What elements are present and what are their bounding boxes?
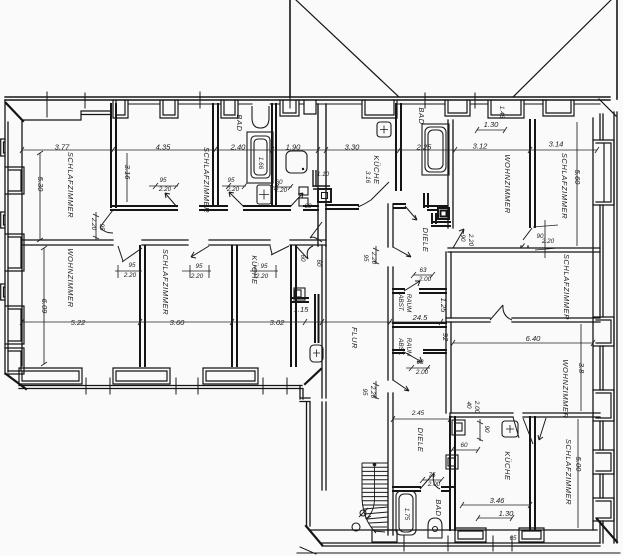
- svg-text:BAD: BAD: [417, 107, 426, 124]
- svg-text:3.14: 3.14: [549, 140, 564, 149]
- svg-text:5.00: 5.00: [574, 457, 583, 473]
- svg-text:BAD: BAD: [434, 499, 443, 516]
- svg-text:2.00: 2.00: [473, 400, 480, 414]
- svg-text:3.60: 3.60: [170, 318, 186, 327]
- svg-text:1.30: 1.30: [484, 120, 500, 129]
- svg-text:3.8: 3.8: [577, 363, 586, 374]
- svg-text:6.40: 6.40: [526, 334, 542, 343]
- svg-text:1.75: 1.75: [403, 508, 410, 521]
- svg-text:WOHNZIMMER: WOHNZIMMER: [561, 359, 570, 418]
- svg-text:75: 75: [428, 472, 436, 479]
- svg-text:1.15: 1.15: [294, 305, 310, 314]
- svg-text:1.66: 1.66: [257, 157, 264, 170]
- svg-text:65: 65: [509, 535, 517, 542]
- svg-text:WOHNZIMMER: WOHNZIMMER: [66, 248, 75, 307]
- svg-text:1.46: 1.46: [498, 106, 505, 119]
- svg-text:2.20: 2.20: [190, 273, 204, 280]
- svg-text:40: 40: [465, 401, 472, 409]
- svg-text:2.20: 2.20: [255, 273, 269, 280]
- svg-text:60: 60: [315, 259, 322, 267]
- svg-text:95: 95: [98, 223, 105, 231]
- svg-text:63: 63: [419, 267, 427, 274]
- svg-text:2.25: 2.25: [416, 143, 433, 152]
- svg-text:ABST.: ABST.: [397, 293, 404, 312]
- svg-text:4.35: 4.35: [156, 143, 172, 152]
- svg-text:BAD: BAD: [235, 114, 244, 131]
- svg-text:95: 95: [361, 388, 368, 396]
- svg-text:3.12: 3.12: [473, 142, 489, 151]
- svg-text:KÜCHE: KÜCHE: [372, 155, 381, 185]
- svg-text:5.22: 5.22: [71, 318, 87, 327]
- svg-text:2.00: 2.00: [427, 481, 441, 488]
- svg-text:3.02: 3.02: [270, 318, 286, 327]
- svg-text:3.46: 3.46: [490, 496, 506, 505]
- svg-text:2.00: 2.00: [415, 369, 429, 376]
- svg-text:1.30: 1.30: [499, 509, 515, 518]
- svg-text:95: 95: [159, 177, 167, 184]
- svg-text:63: 63: [416, 359, 424, 366]
- svg-text:DIELE: DIELE: [421, 228, 430, 253]
- svg-text:95: 95: [362, 254, 369, 262]
- svg-text:2.45: 2.45: [411, 410, 425, 417]
- svg-text:FLUR: FLUR: [350, 327, 359, 349]
- svg-text:3.30: 3.30: [345, 143, 361, 152]
- svg-text:SCHLAFZIMMER: SCHLAFZIMMER: [202, 147, 211, 213]
- svg-text:2.00: 2.00: [418, 276, 432, 283]
- svg-text:3.77: 3.77: [55, 143, 71, 152]
- svg-text:SCHLAFZIMMER: SCHLAFZIMMER: [161, 249, 170, 315]
- svg-text:6.09: 6.09: [40, 299, 49, 315]
- svg-text:ABST.: ABST.: [397, 337, 404, 356]
- svg-text:DIELE: DIELE: [416, 428, 425, 453]
- svg-text:KÜCHE: KÜCHE: [503, 451, 512, 481]
- svg-text:90: 90: [459, 234, 466, 242]
- svg-text:24.5: 24.5: [412, 313, 429, 322]
- svg-text:5.30: 5.30: [36, 177, 45, 193]
- svg-text:SCHLAFZIMMER: SCHLAFZIMMER: [560, 153, 569, 219]
- svg-text:90: 90: [483, 425, 490, 433]
- svg-text:95: 95: [128, 262, 136, 269]
- svg-text:60: 60: [460, 442, 468, 449]
- svg-text:2.20: 2.20: [467, 233, 474, 247]
- svg-text:95: 95: [227, 177, 235, 184]
- svg-text:60: 60: [299, 254, 306, 262]
- svg-text:WOHNZIMMER: WOHNZIMMER: [503, 154, 512, 213]
- svg-text:KÜCHE: KÜCHE: [250, 255, 259, 285]
- svg-text:1.25: 1.25: [439, 298, 448, 314]
- svg-text:60: 60: [304, 203, 312, 210]
- svg-text:RAUM: RAUM: [405, 338, 412, 357]
- svg-text:5.60: 5.60: [573, 170, 582, 186]
- svg-text:2.20: 2.20: [541, 238, 555, 245]
- svg-text:3.16: 3.16: [123, 165, 132, 181]
- svg-text:60: 60: [275, 179, 283, 186]
- svg-text:SCHLAFZIMMER: SCHLAFZIMMER: [564, 439, 573, 505]
- svg-text:1.90: 1.90: [286, 143, 302, 152]
- svg-text:2.40: 2.40: [230, 143, 247, 152]
- svg-text:SCHLAFZIMMER: SCHLAFZIMMER: [66, 152, 75, 218]
- svg-text:2.20: 2.20: [123, 272, 137, 279]
- svg-text:SCHLAFZIMMER: SCHLAFZIMMER: [562, 254, 571, 320]
- svg-text:92: 92: [441, 333, 450, 342]
- svg-text:95: 95: [260, 263, 268, 270]
- svg-text:1.10: 1.10: [317, 171, 330, 178]
- svg-text:2.20: 2.20: [158, 186, 172, 193]
- svg-text:RAUM: RAUM: [405, 294, 412, 313]
- svg-text:95: 95: [195, 263, 203, 270]
- svg-text:3.16: 3.16: [364, 171, 371, 184]
